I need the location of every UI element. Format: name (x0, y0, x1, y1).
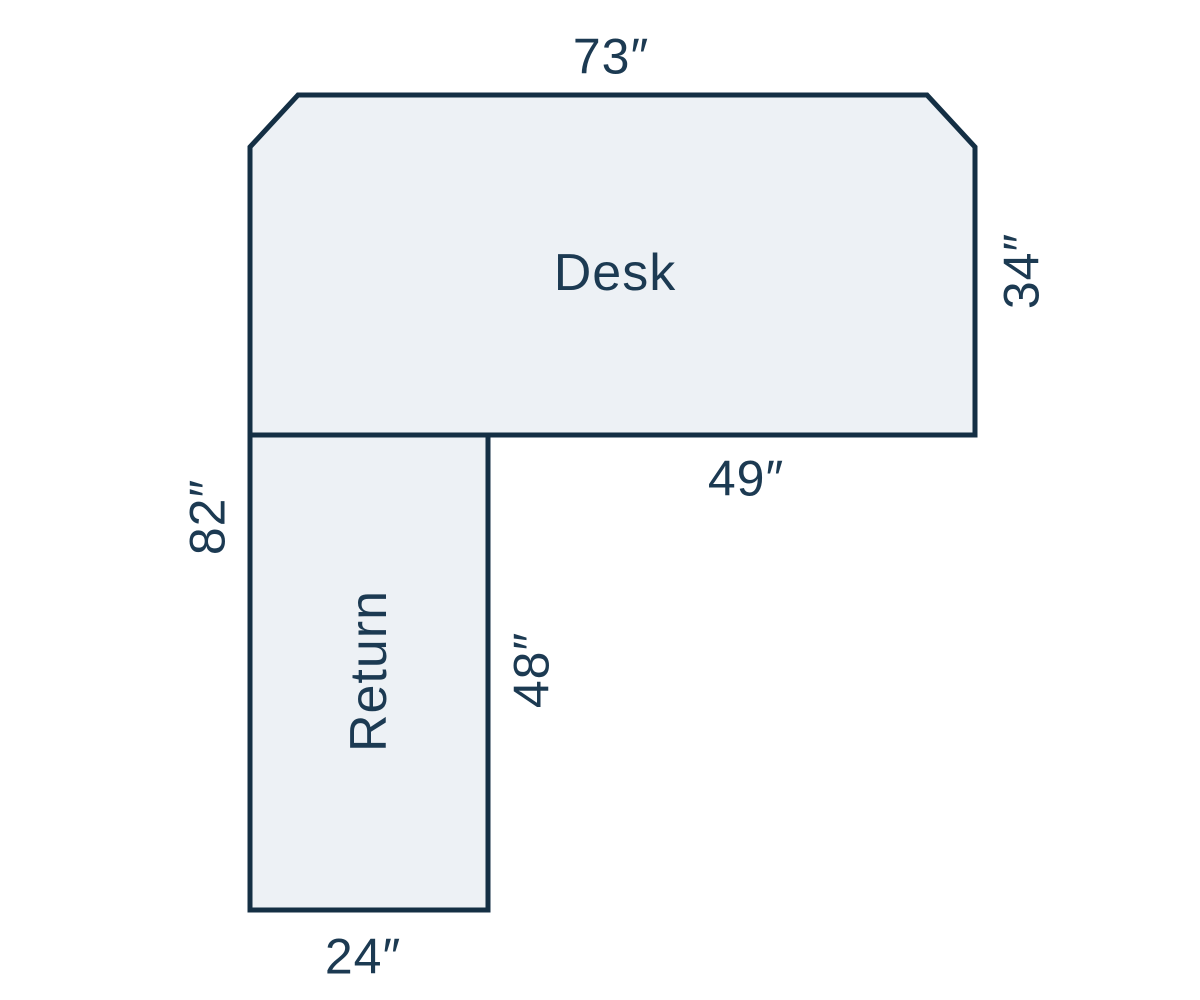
return-left-height-dimension: 82″ (180, 479, 236, 555)
desk-layout-diagram: Desk Return 73″ 34″ 49″ 82″ 48″ 24″ (0, 0, 1200, 1000)
desk-right-depth-dimension: 34″ (994, 233, 1050, 309)
return-label: Return (340, 590, 398, 752)
desk-bottom-width-dimension: 49″ (708, 451, 784, 507)
desk-top-width-dimension: 73″ (573, 29, 649, 85)
return-bottom-width-dimension: 24″ (325, 929, 401, 985)
desk-label: Desk (554, 244, 676, 302)
return-right-height-dimension: 48″ (504, 632, 560, 708)
diagram-svg: Desk Return 73″ 34″ 49″ 82″ 48″ 24″ (0, 0, 1200, 1000)
